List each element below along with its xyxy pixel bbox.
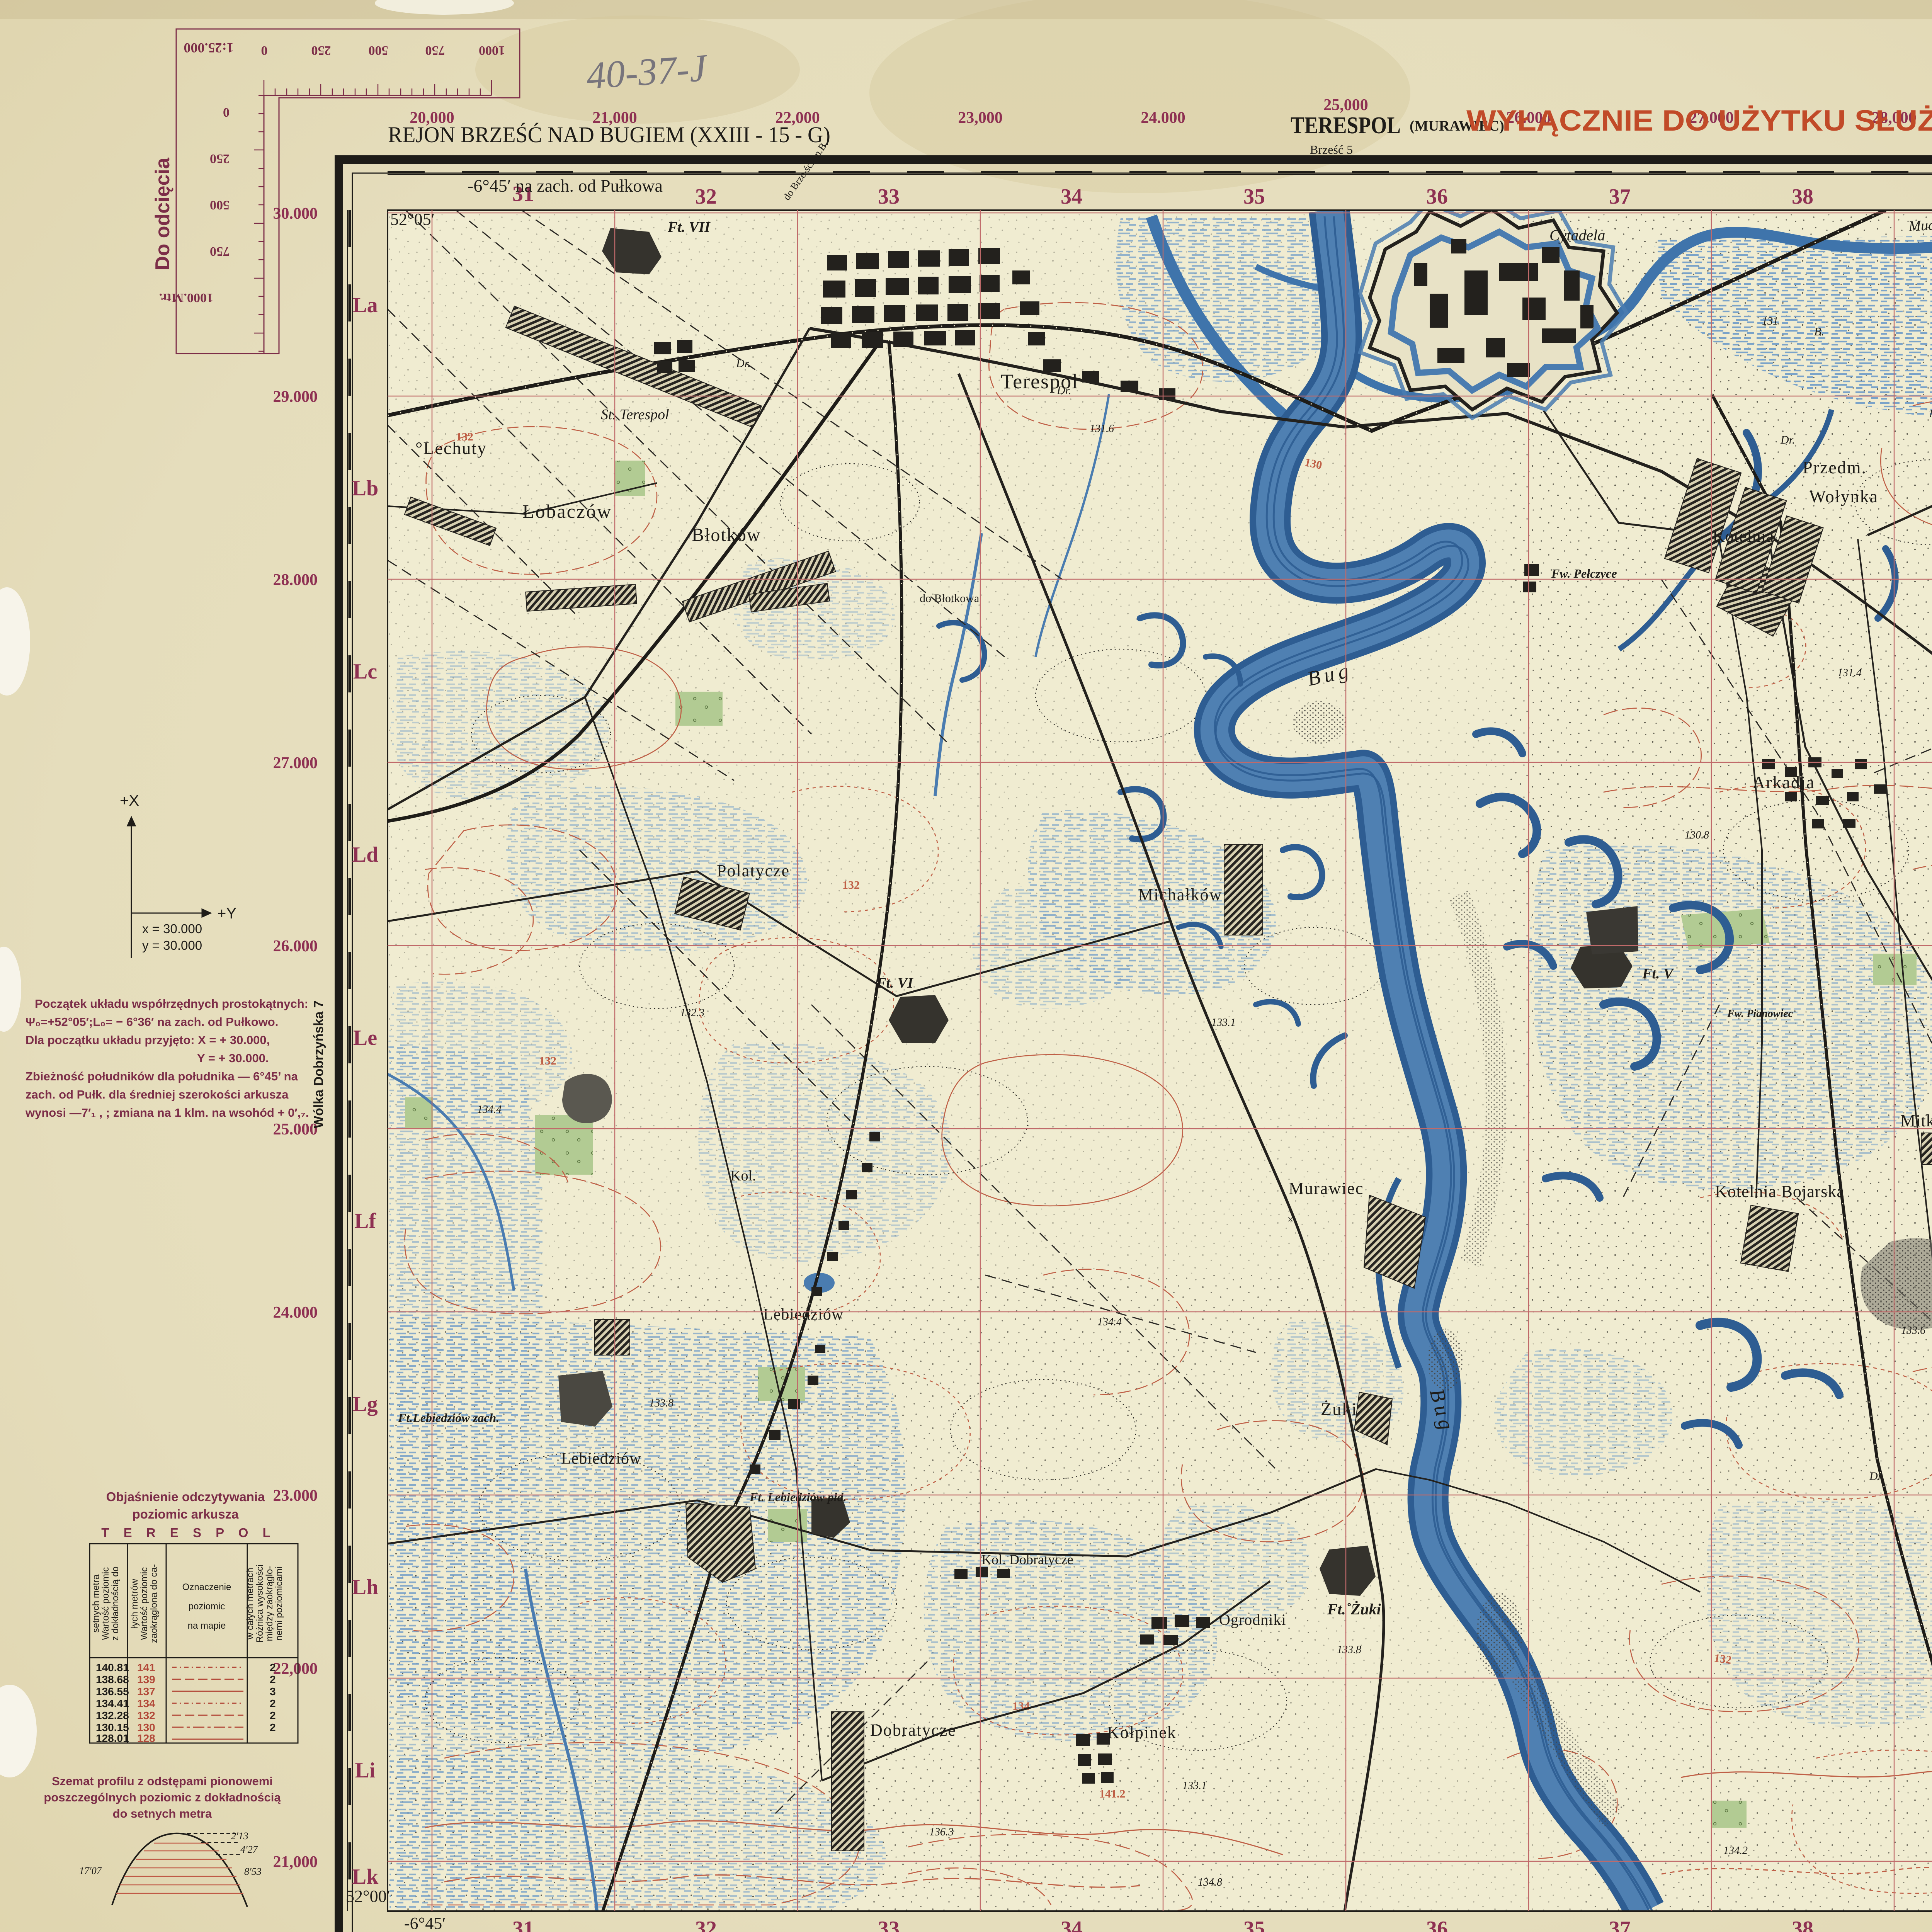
- svg-text:Zbieżność południków dla połud: Zbieżność południków dla południka — 6°4…: [26, 1070, 298, 1083]
- svg-text:La: La: [352, 293, 378, 317]
- svg-text:30.000: 30.000: [273, 205, 318, 223]
- svg-text:Żuki: Żuki: [1321, 1399, 1357, 1419]
- svg-text:Ld: Ld: [352, 843, 379, 867]
- svg-text:4′27: 4′27: [240, 1844, 258, 1855]
- svg-text:2: 2: [270, 1662, 276, 1673]
- svg-text:Ft.˚Żuki: Ft.˚Żuki: [1327, 1600, 1381, 1618]
- svg-text:137: 137: [137, 1685, 155, 1697]
- svg-text:25,000: 25,000: [1323, 96, 1368, 114]
- svg-text:36: 36: [1426, 185, 1448, 209]
- svg-text:Lebiedziów: Lebiedziów: [561, 1450, 641, 1468]
- svg-text:Dr.: Dr.: [1056, 384, 1071, 397]
- svg-text:Błotków: Błotków: [692, 525, 761, 545]
- svg-text:32: 32: [695, 1917, 717, 1932]
- svg-text:w całych metrach: w całych metrach: [245, 1568, 255, 1639]
- svg-text:36: 36: [1426, 1917, 1448, 1932]
- svg-text:38: 38: [1792, 185, 1813, 209]
- svg-text:poziomic: poziomic: [189, 1601, 225, 1612]
- svg-text:136.55: 136.55: [96, 1685, 129, 1697]
- svg-text:Początek układu współrzędnych: Początek układu współrzędnych prostokątn…: [35, 997, 308, 1010]
- svg-text:Dobratycze: Dobratycze: [870, 1721, 956, 1740]
- svg-text:y = 30.000: y = 30.000: [142, 938, 202, 952]
- svg-text:Kotelnia: Kotelnia: [1713, 527, 1774, 546]
- svg-text:27.000: 27.000: [273, 754, 318, 772]
- svg-text:Y = + 30.000.: Y = + 30.000.: [197, 1051, 269, 1065]
- svg-text:Murawiec: Murawiec: [1289, 1179, 1364, 1198]
- svg-text:1000.Mtr.: 1000.Mtr.: [159, 291, 213, 305]
- svg-text:132.28: 132.28: [96, 1709, 129, 1721]
- svg-text:1000: 1000: [479, 43, 505, 58]
- svg-text:38: 38: [1792, 1917, 1813, 1932]
- svg-text:29.000: 29.000: [273, 388, 318, 406]
- svg-text:Szemat profilu z odstępami pio: Szemat profilu z odstępami pionowemi: [52, 1774, 273, 1788]
- svg-text:133.8: 133.8: [1337, 1644, 1361, 1656]
- svg-text:2: 2: [270, 1721, 276, 1733]
- svg-text:21,000: 21,000: [273, 1853, 318, 1871]
- svg-text:Wołynka: Wołynka: [1809, 486, 1878, 506]
- svg-text:250: 250: [210, 151, 230, 166]
- svg-text:B.: B.: [1814, 325, 1824, 338]
- svg-text:Dr.: Dr.: [1780, 434, 1795, 446]
- svg-text:Kołpinek: Kołpinek: [1107, 1723, 1177, 1742]
- svg-text:40-37-J: 40-37-J: [585, 46, 710, 97]
- svg-text:131: 131: [1762, 315, 1778, 327]
- svg-text:139: 139: [137, 1673, 155, 1685]
- svg-text:Wartość poziomic: Wartość poziomic: [139, 1567, 150, 1640]
- svg-text:Kol.: Kol.: [730, 1168, 756, 1184]
- svg-text:52°05′: 52°05′: [390, 210, 435, 229]
- svg-text:33: 33: [878, 185, 900, 209]
- svg-text:24.000: 24.000: [1141, 109, 1185, 127]
- svg-text:Lb: Lb: [352, 476, 379, 500]
- svg-text:133.6: 133.6: [1901, 1325, 1925, 1337]
- svg-text:wynosi —7′₁ , ; zmiana na 1 kl: wynosi —7′₁ , ; zmiana na 1 klm. na wsoh…: [25, 1106, 309, 1119]
- svg-text:500: 500: [210, 198, 230, 212]
- svg-text:Kotelnia Bojarska: Kotelnia Bojarska: [1715, 1182, 1845, 1201]
- svg-text:52°00′: 52°00′: [346, 1887, 390, 1906]
- svg-text:31: 31: [512, 1917, 534, 1932]
- svg-text:Fw. Pełczyce: Fw. Pełczyce: [1551, 566, 1617, 580]
- svg-text:Wartość poziomic: Wartość poziomic: [100, 1567, 111, 1640]
- svg-text:Do odcięcia: Do odcięcia: [151, 157, 174, 270]
- svg-text:134.8: 134.8: [1198, 1876, 1222, 1888]
- svg-text:132: 132: [842, 879, 860, 891]
- svg-text:37: 37: [1609, 185, 1631, 209]
- svg-text:750: 750: [210, 244, 230, 259]
- svg-text:33: 33: [878, 1917, 900, 1932]
- svg-text:8′53: 8′53: [244, 1866, 262, 1877]
- svg-text:Dla początku układu przyjęto:: Dla początku układu przyjęto: X = + 30.0…: [26, 1033, 270, 1047]
- svg-text:Michałków: Michałków: [1138, 885, 1222, 904]
- svg-text:134.4: 134.4: [1097, 1316, 1122, 1328]
- svg-text:×: ×: [1287, 1214, 1294, 1226]
- svg-text:zaokrąglona do ca-: zaokrąglona do ca-: [149, 1564, 159, 1643]
- svg-text:Ft. VII: Ft. VII: [667, 219, 711, 235]
- svg-text:24.000: 24.000: [273, 1304, 318, 1321]
- svg-text:WYŁĄCZNIE DO UŻYTKU SŁUŻBOWEGO: WYŁĄCZNIE DO UŻYTKU SŁUŻBOWEGO.: [1466, 104, 1932, 137]
- svg-text:134.41: 134.41: [96, 1697, 129, 1709]
- svg-text:do Błotkowa: do Błotkowa: [920, 592, 979, 605]
- svg-text:133.1: 133.1: [1211, 1017, 1236, 1029]
- svg-text:Brześć 5: Brześć 5: [1310, 143, 1353, 156]
- svg-text:Ogrodniki: Ogrodniki: [1219, 1611, 1286, 1628]
- svg-text:133.1: 133.1: [1182, 1780, 1207, 1792]
- svg-text:0: 0: [261, 43, 268, 58]
- svg-text:Ft. VI: Ft. VI: [876, 975, 913, 991]
- svg-text:łych metrów: łych metrów: [129, 1578, 140, 1628]
- svg-text:Lg: Lg: [352, 1392, 378, 1416]
- svg-text:23.000: 23.000: [273, 1487, 318, 1505]
- svg-text:setnych metra: setnych metra: [91, 1574, 101, 1633]
- svg-text:Dr.: Dr.: [1869, 1470, 1884, 1483]
- svg-text:32: 32: [695, 185, 717, 209]
- svg-text:134.4: 134.4: [477, 1104, 502, 1116]
- svg-text:133.8: 133.8: [649, 1397, 673, 1409]
- svg-text:250: 250: [311, 43, 331, 58]
- svg-text:22,000: 22,000: [273, 1660, 318, 1678]
- svg-text:130: 130: [137, 1721, 155, 1733]
- svg-text:141: 141: [137, 1662, 155, 1673]
- svg-text:x = 30.000: x = 30.000: [142, 922, 202, 936]
- svg-text:128: 128: [137, 1732, 155, 1744]
- svg-text:0: 0: [223, 105, 230, 119]
- svg-text:Łobaczów: Łobaczów: [522, 500, 612, 522]
- svg-text:-6°45′ na zach. od Pułkowa: -6°45′ na zach. od Pułkowa: [468, 176, 663, 196]
- svg-text:Mitki: Mitki: [1900, 1111, 1932, 1130]
- svg-text:37: 37: [1609, 1917, 1631, 1932]
- svg-text:+Y: +Y: [217, 905, 236, 922]
- svg-text:TERESPOL: TERESPOL: [1291, 112, 1401, 139]
- svg-text:Li: Li: [355, 1759, 376, 1782]
- svg-text:Kol. Dobratycze: Kol. Dobratycze: [981, 1552, 1073, 1567]
- svg-text:2: 2: [270, 1673, 276, 1685]
- svg-text:500: 500: [369, 43, 388, 58]
- svg-text:140.81: 140.81: [96, 1662, 129, 1673]
- svg-text:130.8: 130.8: [1685, 829, 1709, 841]
- svg-text:3: 3: [270, 1685, 276, 1697]
- svg-text:132: 132: [1713, 1651, 1732, 1667]
- svg-text:Różnica wysokości: Różnica wysokości: [255, 1565, 265, 1643]
- svg-text:Lebiedziów: Lebiedziów: [763, 1306, 844, 1323]
- svg-text:2′13: 2′13: [231, 1830, 248, 1842]
- svg-text:poszczególnych poziomic z dokł: poszczególnych poziomic z dokładnością: [44, 1791, 281, 1804]
- svg-text:23,000: 23,000: [958, 109, 1003, 127]
- svg-text:Lf: Lf: [354, 1209, 376, 1233]
- svg-text:134.2: 134.2: [1723, 1845, 1748, 1857]
- svg-text:138.68: 138.68: [96, 1673, 129, 1685]
- svg-text:°Lechuty: °Lechuty: [415, 438, 487, 458]
- svg-text:132: 132: [137, 1709, 155, 1721]
- svg-text:2: 2: [270, 1697, 276, 1709]
- svg-text:136.3: 136.3: [929, 1826, 954, 1838]
- svg-text:35: 35: [1243, 1917, 1265, 1932]
- svg-text:REJON BRZEŚĆ NAD BUGIEM (XXIII: REJON BRZEŚĆ NAD BUGIEM (XXIII - 15 - G): [388, 122, 830, 147]
- svg-text:Polatycze: Polatycze: [717, 861, 790, 880]
- svg-text:139.5: 139.5: [1928, 408, 1932, 420]
- svg-text:Oznaczenie: Oznaczenie: [182, 1582, 231, 1592]
- svg-text:Arkadja: Arkadja: [1752, 772, 1815, 792]
- svg-text:134: 134: [137, 1697, 155, 1709]
- svg-text:Lh: Lh: [352, 1575, 379, 1599]
- svg-text:128.01: 128.01: [96, 1732, 129, 1744]
- svg-text:131.6: 131.6: [1090, 423, 1114, 435]
- svg-text:-6°45′: -6°45′: [404, 1914, 446, 1932]
- svg-text:Le: Le: [353, 1026, 377, 1050]
- svg-text:130.15: 130.15: [96, 1721, 129, 1733]
- svg-text:Przedm.: Przedm.: [1803, 457, 1867, 477]
- svg-text:nemi poziomicami: nemi poziomicami: [274, 1566, 284, 1641]
- svg-text:poziomic arkusza: poziomic arkusza: [132, 1507, 239, 1521]
- svg-text:St. Terespol: St. Terespol: [601, 406, 669, 423]
- svg-text:z dokładnością do: z dokładnością do: [110, 1566, 121, 1641]
- svg-text:Lk: Lk: [352, 1865, 379, 1889]
- svg-text:T E R E S P O L: T E R E S P O L: [101, 1526, 276, 1540]
- svg-text:Ψ₀=+52°05′;L₀= − 6°36′ na za: Ψ₀=+52°05′;L₀= − 6°36′ na zach. od Pułko…: [26, 1015, 278, 1029]
- svg-text:34: 34: [1061, 1917, 1082, 1932]
- svg-text:35: 35: [1243, 185, 1265, 209]
- svg-text:Lc: Lc: [353, 660, 377, 684]
- svg-text:1:25.000: 1:25.000: [184, 40, 234, 56]
- svg-text:Dr.: Dr.: [736, 357, 751, 370]
- svg-text:28.000: 28.000: [273, 571, 318, 589]
- svg-text:34: 34: [1061, 185, 1082, 209]
- svg-text:132.3: 132.3: [680, 1007, 704, 1019]
- svg-text:Ft. V: Ft. V: [1642, 966, 1674, 982]
- svg-text:Fw. Pianowiec: Fw. Pianowiec: [1727, 1008, 1793, 1020]
- svg-text:zach. od Pułk. dla średniej sz: zach. od Pułk. dla średniej szerokości a…: [26, 1088, 289, 1101]
- svg-text:między zaokrąglo-: między zaokrąglo-: [264, 1566, 275, 1641]
- svg-text:+X: +X: [120, 792, 139, 809]
- svg-text:25.000: 25.000: [273, 1121, 318, 1138]
- svg-text:17′07: 17′07: [79, 1865, 102, 1876]
- svg-text:2: 2: [270, 1709, 276, 1721]
- svg-text:Wólka Dobrzyńska 7: Wólka Dobrzyńska 7: [311, 1000, 326, 1128]
- svg-text:Cytadela: Cytadela: [1549, 226, 1605, 244]
- svg-text:750: 750: [425, 43, 445, 58]
- svg-text:132: 132: [539, 1054, 556, 1067]
- svg-text:na mapie: na mapie: [188, 1621, 226, 1631]
- svg-text:Ft.Lebiedziów zach.: Ft.Lebiedziów zach.: [398, 1411, 499, 1425]
- svg-text:131.4: 131.4: [1837, 667, 1862, 679]
- svg-text:Objaśnienie odczytywania: Objaśnienie odczytywania: [106, 1490, 265, 1504]
- svg-text:141.2: 141.2: [1099, 1787, 1126, 1800]
- svg-text:do setnych metra: do setnych metra: [113, 1807, 212, 1820]
- svg-text:26.000: 26.000: [273, 937, 318, 955]
